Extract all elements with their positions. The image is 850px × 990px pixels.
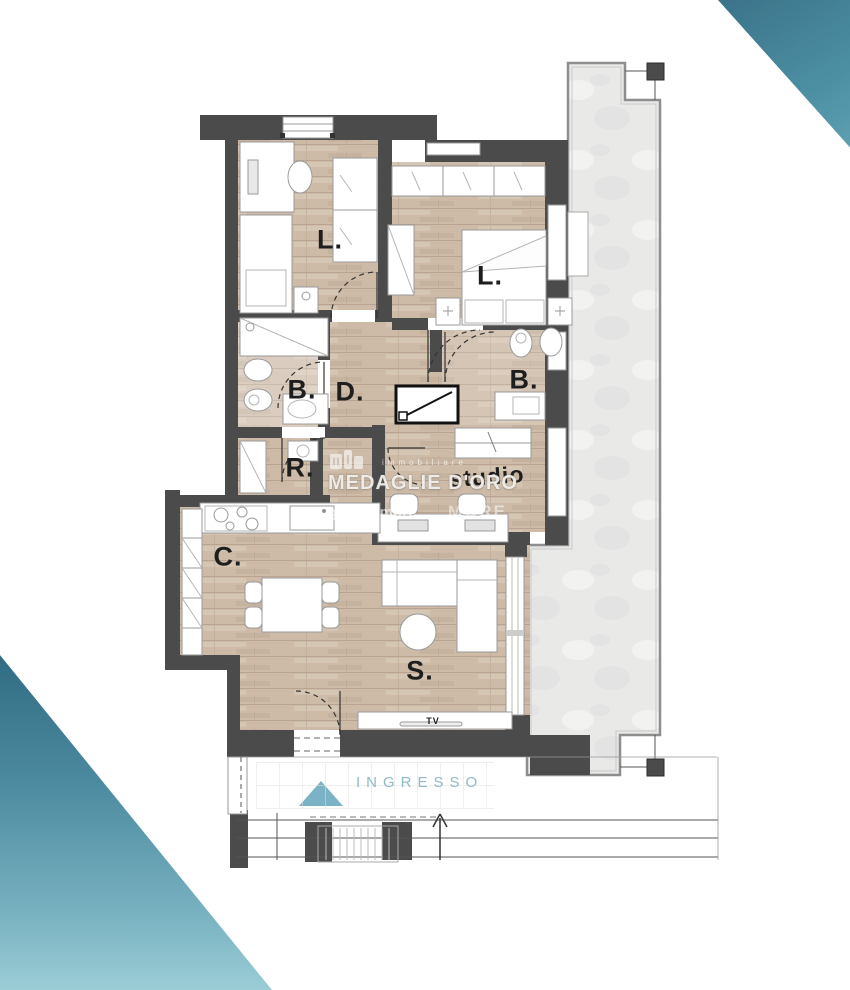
sink bbox=[495, 392, 545, 420]
floor-plan-page: L. L. B. D. B. R. studio C. S. TV INGRES… bbox=[0, 0, 850, 990]
pillar-bottom bbox=[647, 759, 664, 776]
shaft bbox=[396, 386, 458, 423]
entry-opening bbox=[294, 730, 340, 757]
direction-arrow bbox=[433, 814, 447, 860]
dining-table bbox=[262, 578, 322, 632]
watermark-title: MEDAGLIE D'ORO bbox=[328, 472, 518, 495]
room-label-storage: R. bbox=[286, 453, 315, 484]
chair bbox=[322, 582, 339, 603]
bidet bbox=[540, 328, 562, 356]
toilet bbox=[244, 389, 272, 411]
ingresso-label: INGRESSO bbox=[356, 774, 483, 791]
window-study bbox=[548, 428, 566, 516]
room-label-bathroom-2: B. bbox=[510, 365, 539, 396]
room-label-bedroom-2: L. bbox=[477, 261, 503, 292]
floor-plan-drawing bbox=[0, 0, 850, 990]
sofa-chaise bbox=[457, 560, 497, 652]
room-label-living: S. bbox=[406, 656, 434, 687]
room-label-kitchen: C. bbox=[214, 542, 243, 573]
watermark-more: MORE bbox=[448, 502, 507, 522]
window-bedroom-2 bbox=[548, 205, 566, 280]
watermark-immobiliare: immobiliare bbox=[382, 458, 467, 467]
chair bbox=[245, 607, 262, 628]
pillar-top bbox=[647, 63, 664, 80]
stair-wall-left bbox=[230, 810, 248, 868]
wardrobe bbox=[392, 166, 545, 196]
coffee-table bbox=[400, 614, 436, 650]
room-label-bathroom-1: B. bbox=[288, 375, 317, 406]
room-label-bedroom-1: L. bbox=[317, 225, 343, 256]
watermark-logo-icon bbox=[330, 449, 364, 473]
stair-wall-mid-right bbox=[382, 822, 412, 860]
bidet bbox=[244, 359, 272, 381]
chair bbox=[245, 582, 262, 603]
tv-label: TV bbox=[426, 716, 440, 726]
chair bbox=[322, 607, 339, 628]
room-label-hallway: D. bbox=[336, 377, 365, 408]
watermark-gruppomore: gruppomore bbox=[328, 504, 416, 521]
